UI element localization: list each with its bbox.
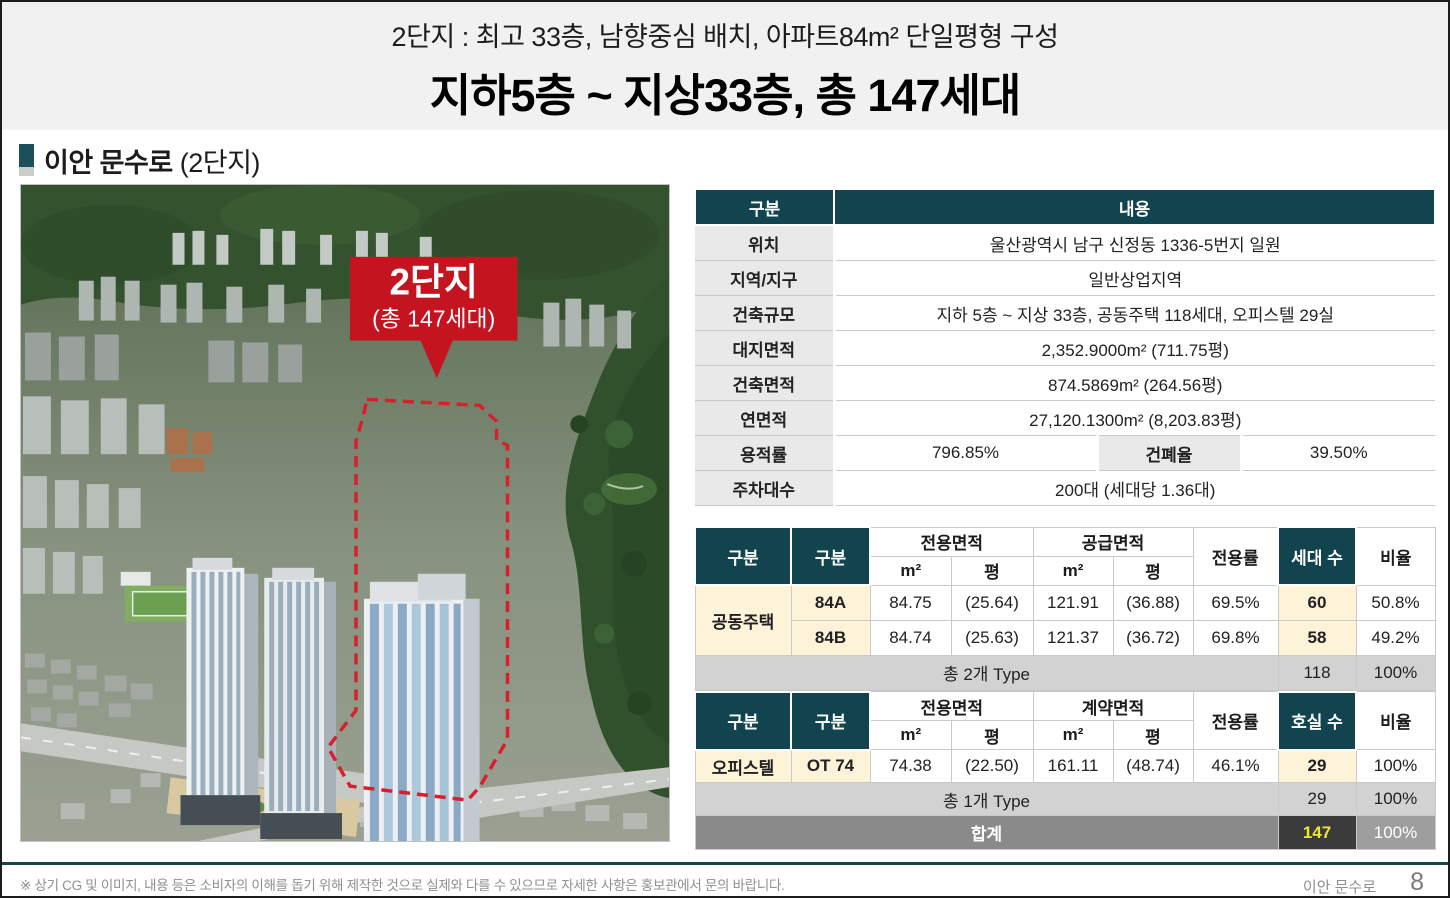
off-col-pyeong: 평 — [951, 721, 1033, 750]
off-total-label: 총 1개 Type — [695, 783, 1278, 816]
callout-title: 2단지 — [390, 262, 478, 303]
apt-category: 공동주택 — [695, 585, 791, 655]
off-type: OT 74 — [791, 750, 870, 783]
off-col-type: 구분 — [791, 692, 870, 750]
apt-total-share: 100% — [1356, 655, 1435, 690]
info-label: 주차대수 — [695, 471, 834, 506]
officetel-table: 구분 구분 전용면적 계약면적 전용률 호실 수 비율 m² 평 m² 평 오피… — [694, 691, 1436, 851]
off-category: 오피스텔 — [695, 750, 791, 783]
footer-divider — [2, 862, 1448, 865]
section-bullet-icon — [19, 144, 34, 176]
info-value: 울산광역시 남구 신정동 1336-5번지 일원 — [834, 225, 1435, 261]
apt-exclusive-m2: 84.75 — [870, 585, 951, 620]
info-label: 위치 — [695, 225, 834, 261]
footer-project-name: 이안 문수로 — [1303, 876, 1376, 897]
apt-supply-py: (36.88) — [1113, 585, 1193, 620]
off-total-units: 29 — [1278, 783, 1356, 816]
apt-supply-py: (36.72) — [1113, 620, 1193, 655]
off-exclusive-py: (22.50) — [951, 750, 1033, 783]
off-total-share: 100% — [1356, 783, 1435, 816]
apt-type: 84B — [791, 620, 870, 655]
off-ratio: 46.1% — [1193, 750, 1278, 783]
apt-type: 84A — [791, 585, 870, 620]
apt-total-label: 총 2개 Type — [695, 655, 1278, 690]
apt-col-pyeong: 평 — [1113, 556, 1193, 585]
apt-share: 50.8% — [1356, 585, 1435, 620]
table-row: 공동주택 84A 84.75 (25.64) 121.91 (36.88) 69… — [695, 585, 1435, 620]
apt-col-ratio: 전용률 — [1193, 527, 1278, 585]
grand-total-share: 100% — [1356, 816, 1435, 850]
brochure-page: 2단지 : 최고 33층, 남향중심 배치, 아파트84m² 단일평형 구성 지… — [0, 0, 1450, 898]
callout-subtitle: (총 147세대) — [372, 306, 495, 332]
off-total-row: 총 1개 Type 29 100% — [695, 783, 1435, 816]
section-title-suffix: (2단지) — [180, 148, 260, 178]
apt-supply-m2: 121.37 — [1033, 620, 1113, 655]
info-value: 874.5869m² (264.56평) — [834, 366, 1435, 401]
apt-ratio: 69.8% — [1193, 620, 1278, 655]
info-value: 일반상업지역 — [834, 261, 1435, 296]
apt-col-supply: 공급면적 — [1033, 527, 1193, 556]
off-col-exclusive: 전용면적 — [870, 692, 1033, 721]
apt-exclusive-m2: 84.74 — [870, 620, 951, 655]
off-contract-m2: 161.11 — [1033, 750, 1113, 783]
apt-share: 49.2% — [1356, 620, 1435, 655]
section-title: 이안 문수로 (2단지) — [44, 141, 260, 180]
apt-col-exclusive: 전용면적 — [870, 527, 1033, 556]
table-row: 용적률 796.85% 건폐율 39.50% — [695, 436, 1435, 471]
grand-total-label: 합계 — [695, 816, 1278, 850]
aerial-photo: 2단지 (총 147세대) — [20, 184, 670, 842]
apt-ratio: 69.5% — [1193, 585, 1278, 620]
apt-units: 58 — [1278, 620, 1356, 655]
apt-units: 60 — [1278, 585, 1356, 620]
highlighted-tower — [342, 574, 502, 841]
grand-total-row: 합계 147 100% — [695, 816, 1435, 850]
off-col-contract: 계약면적 — [1033, 692, 1193, 721]
info-label: 지역/지구 — [695, 261, 834, 296]
info-value: 200대 (세대당 1.36대) — [834, 471, 1435, 506]
table-row: 지역/지구 일반상업지역 — [695, 261, 1435, 296]
info-label: 대지면적 — [695, 331, 834, 366]
apt-total-row: 총 2개 Type 118 100% — [695, 655, 1435, 690]
off-col-ratio: 전용률 — [1193, 692, 1278, 750]
info-label: 건축규모 — [695, 296, 834, 331]
data-column: 구분 내용 위치 울산광역시 남구 신정동 1336-5번지 일원 지역/지구 … — [694, 188, 1434, 850]
off-units: 29 — [1278, 750, 1356, 783]
aerial-photo-art: 2단지 (총 147세대) — [21, 185, 669, 841]
info-sublabel: 건폐율 — [1097, 436, 1241, 471]
info-value: 796.85% — [834, 436, 1097, 471]
section-title-name: 이안 문수로 — [44, 148, 173, 178]
apt-col-units: 세대 수 — [1278, 527, 1356, 585]
table-row: 건축규모 지하 5층 ~ 지상 33층, 공동주택 118세대, 오피스텔 29… — [695, 296, 1435, 331]
bullet-gray — [19, 167, 34, 176]
off-col-units: 호실 수 — [1278, 692, 1356, 750]
apt-total-units: 118 — [1278, 655, 1356, 690]
off-col-share: 비율 — [1356, 692, 1435, 750]
info-value: 2,352.9000m² (711.75평) — [834, 331, 1435, 366]
apt-col-type: 구분 — [791, 527, 870, 585]
banner-title: 지하5층 ~ 지상33층, 총 147세대 — [2, 59, 1448, 124]
table-row: 연면적 27,120.1300m² (8,203.83평) — [695, 401, 1435, 436]
footer-disclaimer: ※ 상기 CG 및 이미지, 내용 등은 소비자의 이해를 돕기 위해 제작한 … — [20, 874, 785, 894]
table-row: 주차대수 200대 (세대당 1.36대) — [695, 471, 1435, 506]
apt-col-category: 구분 — [695, 527, 791, 585]
info-col-content: 내용 — [834, 189, 1435, 225]
info-label: 건축면적 — [695, 366, 834, 401]
section-head: 이안 문수로 (2단지) — [19, 141, 260, 180]
table-row: 위치 울산광역시 남구 신정동 1336-5번지 일원 — [695, 225, 1435, 261]
off-col-m2: m² — [1033, 721, 1113, 750]
table-row: 건축면적 874.5869m² (264.56평) — [695, 366, 1435, 401]
apt-col-pyeong: 평 — [951, 556, 1033, 585]
info-label: 용적률 — [695, 436, 834, 471]
apt-col-m2: m² — [870, 556, 951, 585]
off-exclusive-m2: 74.38 — [870, 750, 951, 783]
off-contract-py: (48.74) — [1113, 750, 1193, 783]
apt-exclusive-py: (25.63) — [951, 620, 1033, 655]
table-row: 84B 84.74 (25.63) 121.37 (36.72) 69.8% 5… — [695, 620, 1435, 655]
table-row: 오피스텔 OT 74 74.38 (22.50) 161.11 (48.74) … — [695, 750, 1435, 783]
bullet-teal — [19, 144, 34, 167]
info-label: 연면적 — [695, 401, 834, 436]
off-share: 100% — [1356, 750, 1435, 783]
info-value2: 39.50% — [1241, 436, 1435, 471]
apartment-unit-table: 구분 구분 전용면적 공급면적 전용률 세대 수 비율 m² 평 m² 평 공동… — [694, 526, 1436, 691]
banner-subtitle: 2단지 : 최고 33층, 남향중심 배치, 아파트84m² 단일평형 구성 — [2, 15, 1448, 54]
apt-col-share: 비율 — [1356, 527, 1435, 585]
table-row: 대지면적 2,352.9000m² (711.75평) — [695, 331, 1435, 366]
top-banner: 2단지 : 최고 33층, 남향중심 배치, 아파트84m² 단일평형 구성 지… — [2, 2, 1448, 130]
apt-supply-m2: 121.91 — [1033, 585, 1113, 620]
apt-exclusive-py: (25.64) — [951, 585, 1033, 620]
off-col-category: 구분 — [695, 692, 791, 750]
info-value: 지하 5층 ~ 지상 33층, 공동주택 118세대, 오피스텔 29실 — [834, 296, 1435, 331]
off-col-pyeong: 평 — [1113, 721, 1193, 750]
off-col-m2: m² — [870, 721, 951, 750]
project-info-table: 구분 내용 위치 울산광역시 남구 신정동 1336-5번지 일원 지역/지구 … — [694, 188, 1436, 506]
footer-page-number: 8 — [1410, 868, 1424, 897]
apt-col-m2: m² — [1033, 556, 1113, 585]
grand-total-units: 147 — [1278, 816, 1356, 850]
info-value: 27,120.1300m² (8,203.83평) — [834, 401, 1435, 436]
info-col-category: 구분 — [695, 189, 834, 225]
